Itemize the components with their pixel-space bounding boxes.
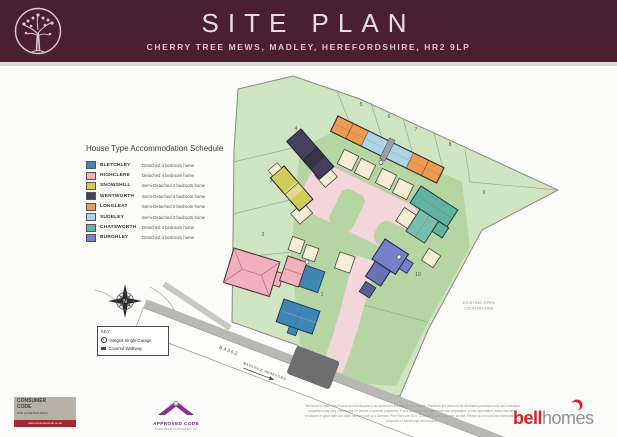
house-type-swatch	[86, 192, 96, 200]
plot-label: 4	[295, 126, 298, 132]
house-type-desc: Semi-Detached 4 bedroom home	[142, 183, 205, 188]
house-type-desc: Detached 4 bedroom home	[142, 225, 194, 230]
consumer-code-line: CODE	[17, 405, 73, 411]
bellhomes-logo: bellhomes	[513, 401, 605, 429]
compass-rose-icon: N	[108, 284, 142, 318]
schedule-row: SUDELEY Semi-Detached 3 bedroom home	[86, 212, 261, 222]
brand-bell: bell	[513, 408, 542, 428]
approved-code-logo: APPROVED CODE TRADINGSTANDARDS.UK	[146, 399, 206, 431]
house-type-desc: Detached 4 bedroom home	[142, 163, 194, 168]
integral-garage-icon	[101, 337, 107, 343]
accommodation-schedule: House Type Accommodation Schedule BLETCH…	[86, 144, 261, 243]
approved-code-roof-icon	[156, 399, 196, 417]
house-type-swatch	[86, 224, 96, 232]
integral-garage-marker	[397, 255, 401, 259]
schedule-row: CHATSWORTH Detached 4 bedroom home	[86, 222, 261, 232]
schedule-row: LONGLEAT Semi-Detached 3 bedroom home	[86, 202, 261, 212]
countryside-label: EXISTING OPEN COUNTRYSIDE	[463, 301, 495, 311]
house-type-desc: Semi-Detached 3 bedroom home	[142, 204, 205, 209]
compass-north-label: N	[123, 299, 127, 305]
house-type-desc: Detached 4 bedroom home	[142, 173, 194, 178]
footer: CONSUMER CODE FOR HOME BUILDERS www.cons…	[0, 389, 617, 437]
disclaimer-text: We strive to make each home and developm…	[305, 404, 520, 425]
house-type-swatch	[86, 203, 96, 211]
svg-text:COUNTRYSIDE: COUNTRYSIDE	[464, 307, 494, 311]
plot-label: 6	[388, 114, 391, 120]
house-type-name: LONGLEAT	[100, 204, 142, 209]
schedule-row: WENTWORTH Semi-Detached 4 bedroom home	[86, 191, 261, 201]
plot-label: 2	[262, 232, 265, 238]
plot-label: 8	[449, 142, 452, 148]
consumer-code-line: FOR HOME BUILDERS	[17, 411, 73, 415]
key-row: Covered Walkway	[101, 346, 165, 351]
plot-label: 3	[270, 178, 273, 184]
schedule-title: House Type Accommodation Schedule	[86, 144, 261, 153]
approved-code-subtitle: TRADINGSTANDARDS.UK	[146, 427, 206, 431]
house-type-swatch	[86, 234, 96, 242]
schedule-row: BLETCHLEY Detached 4 bedroom home	[86, 160, 261, 170]
plot-label: 7	[415, 127, 418, 133]
integral-garage-marker	[305, 260, 309, 264]
house-type-name: BLETCHLEY	[100, 163, 142, 168]
plot-label: 1	[321, 292, 324, 298]
house-type-desc: Semi-Detached 3 bedroom home	[142, 215, 205, 220]
house-type-desc: Semi-Detached 4 bedroom home	[142, 194, 205, 199]
disclaimer-line: does not form part of a contract. Plot P…	[344, 414, 520, 423]
svg-text:EXISTING OPEN: EXISTING OPEN	[463, 301, 495, 305]
house-type-name: BURGHLEY	[100, 235, 142, 240]
key-row: Integral Single Garage	[101, 337, 165, 343]
house-type-swatch	[86, 213, 96, 221]
house-type-name: WENTWORTH	[100, 194, 142, 199]
house-type-swatch	[86, 172, 96, 180]
schedule-row: SNOWSHILL Semi-Detached 4 bedroom home	[86, 181, 261, 191]
schedule-row: BURGHLEY Detached 4 bedroom home	[86, 233, 261, 243]
house-type-swatch	[86, 182, 96, 190]
map-key: KEY: Integral Single Garage Covered Walk…	[97, 326, 169, 356]
plot-label: 10	[415, 272, 421, 278]
brand-homes: homes	[542, 408, 594, 428]
house-type-desc: Detached 4 bedroom home	[142, 235, 194, 240]
key-label: Covered Walkway	[109, 346, 143, 351]
key-title: KEY:	[101, 329, 165, 334]
covered-walkway-icon	[101, 347, 106, 351]
house-type-name: HIGHCLERE	[100, 173, 142, 178]
plot-label: 5	[360, 102, 363, 108]
key-label: Integral Single Garage	[110, 338, 152, 343]
house-type-name: SUDELEY	[100, 215, 142, 220]
schedule-row: HIGHCLERE Detached 4 bedroom home	[86, 170, 261, 180]
consumer-code-strip: www.consumercode.co.uk	[14, 420, 76, 427]
house-type-name: CHATSWORTH	[100, 225, 142, 230]
site-plan-page: SITE PLAN CHERRY TREE MEWS, MADLEY, HERE…	[0, 0, 617, 437]
house-type-name: SNOWSHILL	[100, 183, 142, 188]
consumer-code-logo: CONSUMER CODE FOR HOME BUILDERS www.cons…	[14, 397, 76, 427]
house-type-swatch	[86, 161, 96, 169]
plot-label: 9	[483, 190, 486, 196]
